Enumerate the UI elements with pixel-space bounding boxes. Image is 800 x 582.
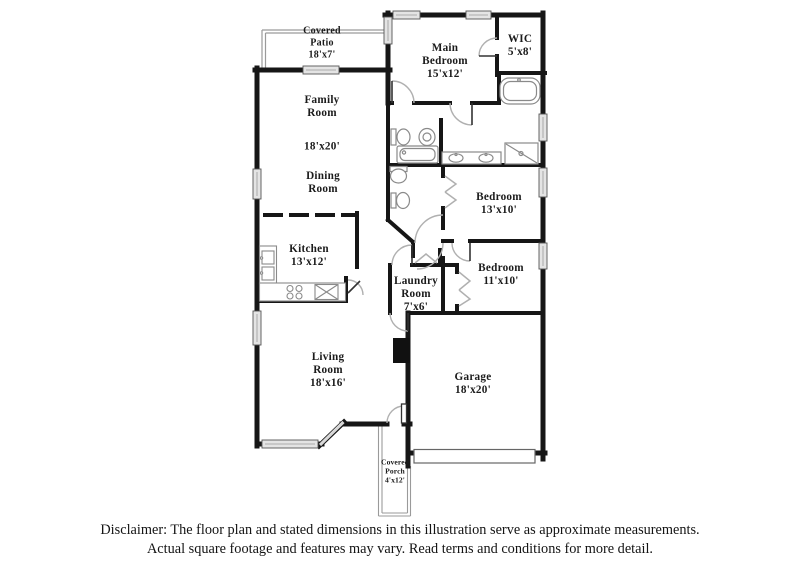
room-label-kitchen: Kitchen 13'x12'	[289, 243, 329, 269]
floor-plan-page: Covered Patio 18'x7' Main Bedroom 15'x12…	[0, 0, 800, 582]
bay-window	[320, 422, 344, 445]
pedestal-sink-icon	[419, 129, 435, 146]
disclaimer-line-1: Disclaimer: The floor plan and stated di…	[0, 521, 800, 540]
room-label-covered-porch: Covered Porch 4'x12'	[381, 459, 409, 486]
room-label-family-room: Family Room	[304, 94, 339, 120]
bathtub	[397, 146, 438, 163]
bedroom-11x10-closet-bifold	[459, 272, 470, 290]
room-label-garage: Garage 18'x20'	[455, 371, 492, 397]
room-label-covered-patio: Covered Patio 18'x7'	[303, 25, 341, 60]
garage-door	[414, 450, 535, 464]
room-label-bedroom-13x10: Bedroom 13'x10'	[476, 191, 522, 217]
wic-door-arc	[479, 38, 497, 56]
kitchen-counter	[260, 283, 346, 301]
pantry-door-arc	[348, 280, 363, 295]
double-vanity	[442, 152, 501, 164]
bedroom-11x10-door-arc	[452, 243, 470, 261]
corner-tub	[500, 78, 540, 104]
hall-door-arc	[415, 215, 443, 243]
toilet-icon	[391, 129, 410, 145]
disclaimer: Disclaimer: The floor plan and stated di…	[0, 521, 800, 558]
room-label-dining-room: Dining Room	[306, 170, 340, 196]
room-label-family-room-dim: 18'x20'	[304, 140, 340, 153]
hall-closet-bifold	[415, 254, 437, 263]
bedroom-13x10-closet-bifold	[445, 176, 456, 192]
disclaimer-line-2: Actual square footage and features may v…	[0, 540, 800, 559]
front-door-leaf	[402, 404, 407, 423]
room-label-bedroom-11x10: Bedroom 11'x10'	[478, 262, 524, 288]
shower	[505, 143, 538, 164]
room-label-living-room: Living Room 18'x16'	[310, 351, 346, 391]
laundry-door-arc	[392, 245, 412, 265]
garage-hall-door-arc	[390, 313, 408, 331]
main-bedroom-door-arc	[392, 81, 414, 103]
bathroom-fixtures	[390, 78, 540, 209]
room-label-main-bedroom: Main Bedroom 15'x12'	[422, 42, 468, 82]
hall-bath-toilet-icon	[391, 193, 410, 209]
main-bath-door-arc	[450, 103, 472, 125]
room-label-laundry-room: Laundry Room 7'x6'	[394, 275, 438, 315]
fireplace	[393, 338, 410, 363]
room-label-wic: WIC 5'x8'	[508, 33, 532, 59]
kitchen-sink-counter	[260, 246, 277, 284]
hall-bath-sink-icon	[390, 167, 407, 184]
doors	[348, 38, 497, 423]
